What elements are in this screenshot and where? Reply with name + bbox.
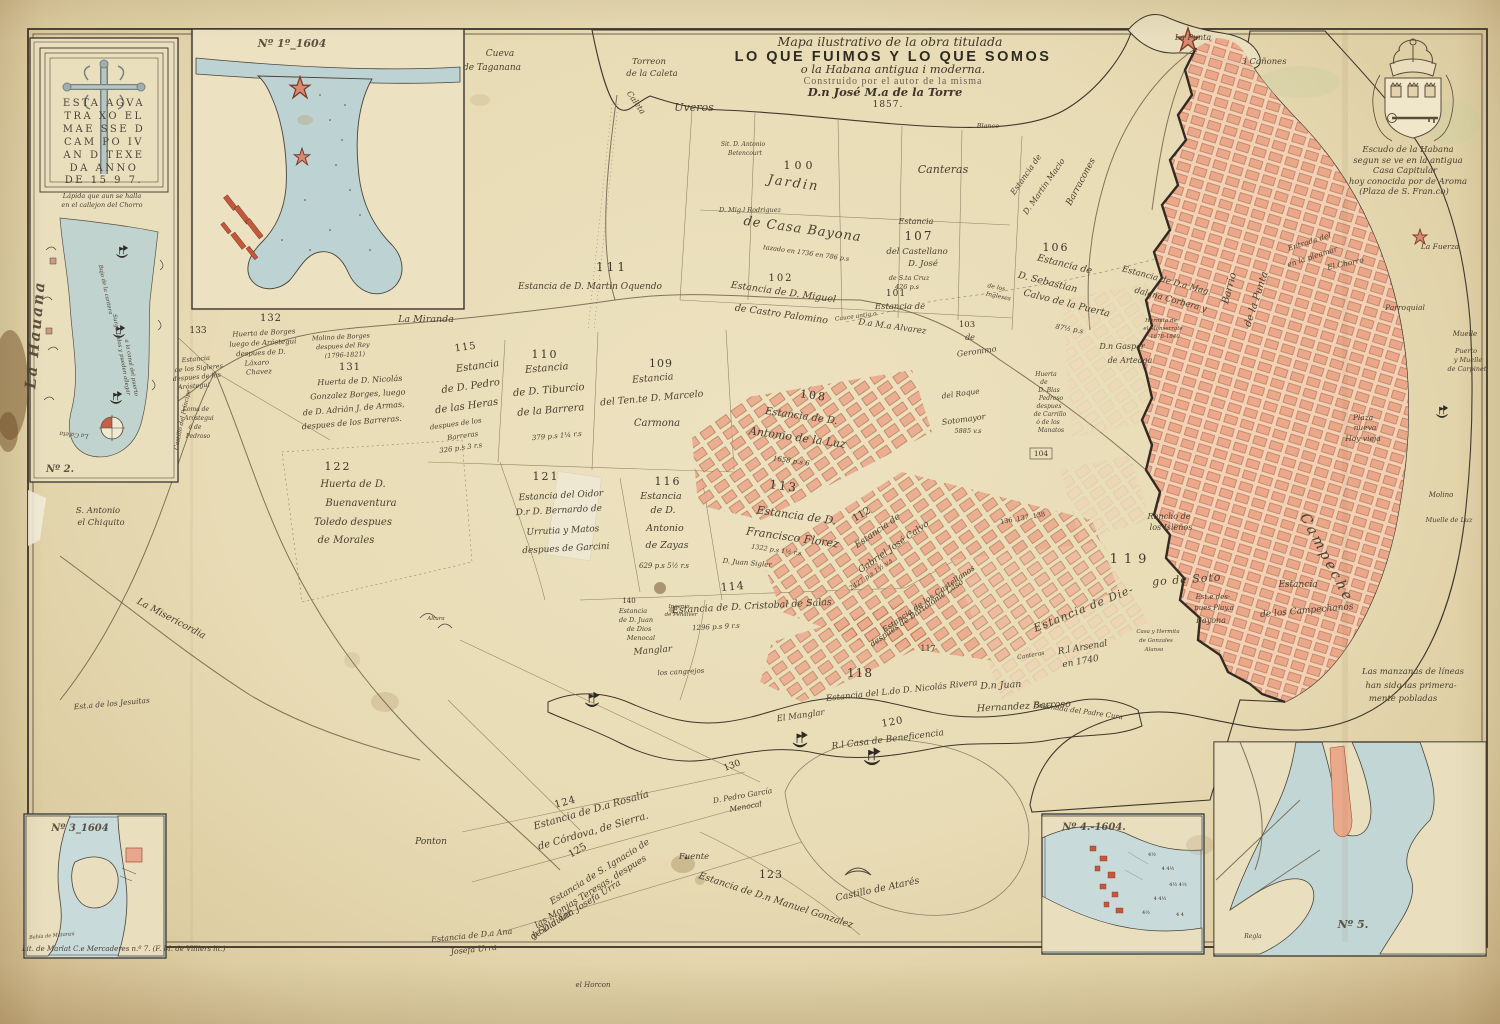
map-label: despues de D. [236,348,286,359]
map-label: Sit. D. Antonio [721,141,766,148]
map-label: Alanso [1144,647,1164,653]
map-label: y Muelle [1453,356,1483,364]
map-label: de la Caleta [626,69,677,79]
map-label: Estancia de [1035,252,1093,277]
map-label: Huerta de D. [319,479,385,490]
map-author: D.n José M.a de la Torre [807,85,963,99]
map-label: Barreras [446,430,479,442]
map-label: de Carpineti [1448,365,1489,373]
map-label: TRA XO EL [64,111,143,122]
map-label: 4½ 4½ [1169,881,1187,888]
map-label: Estancia [454,358,500,375]
map-label: S. Antonio [76,506,120,516]
map-label: de D. Pedro [441,377,501,396]
map-label: ESTA AGVA [63,98,145,109]
map-label: Nº 1º_1604 [257,37,327,51]
map-label: Ensenada del Padre Cura [1032,701,1123,722]
map-label: 107 [905,229,934,243]
map-label: Plaza [1352,413,1373,422]
map-label: 4½ [1148,851,1156,858]
map-label: el Chiquito [77,518,124,528]
map-label: DE 15 9 7. [65,175,143,186]
map-label: 1678-1840 [1150,334,1180,340]
map-label: Gonzalez Borges, luego [310,388,406,402]
map-label: Fuente [678,852,709,862]
map-label: Aróstegui [183,415,214,422]
map-label: de [965,333,975,342]
map-label: mente pobladas [1369,694,1438,704]
map-label: el Monserrate [1143,326,1183,332]
map-label: los Isleños [1150,523,1193,532]
map-label: Aróstegui [177,381,211,392]
map-label: nueva [1354,423,1377,432]
map-title-line3: o la Habana antigua i moderna. [801,62,985,76]
map-label: Lit. de Marlat C.e Mercaderes n.º 7. (F.… [21,945,226,953]
map-label: Jardin [764,172,821,195]
map-label: Nº 5. [1337,918,1369,931]
map-label: 1296 p.s 9 r.s [692,622,740,633]
map-label: Estancia [898,217,934,226]
map-label: 379 p.s 1¼ r.s [532,430,583,442]
map-label: 102 [768,273,793,284]
map-label: Estancia del L.do D. Nicolás Rivera [825,677,978,704]
map-label: 5885 v.s [955,427,983,435]
map-label: de D. Tiburcio [513,382,586,399]
map-label: 119 [1110,552,1153,567]
map-label: 131 [339,362,361,373]
map-label: Uveros [674,101,714,114]
map-label: del Castellano [886,247,947,257]
map-label: Carmona [634,418,680,429]
map-label: de Zayas [646,540,689,551]
map-label: Ingenio [667,604,690,610]
map-label: D. Mig.l Rodriguez [718,206,782,214]
map-label: de S.ta Cruz [889,274,930,282]
map-label: Nº 2. [45,464,74,475]
map-label: El Manglar [775,708,826,725]
map-label: Betencourt [727,150,762,157]
map-label: Estancia de D. Martin Oquendo [517,282,663,292]
map-label: Chavez [246,367,273,376]
inset-no1-1604 [192,29,464,309]
map-label: de D. Juan [619,616,653,624]
map-label: de la Barrera [517,402,585,419]
map-label: MAE SSE D [63,124,145,135]
map-label: 326 p.s 3 r.s [439,441,483,455]
map-label: 120 [881,715,905,730]
map-label: ó de [189,424,202,431]
extramural-blocks [692,282,1158,702]
map-label: Toledo despues [314,517,392,528]
map-label: 101 [886,289,906,299]
map-label: de Arteaga [1108,356,1153,365]
map-label: D. José [907,258,938,269]
map-label: AN D TEXE [62,150,144,161]
map-label: Estancia [631,371,675,386]
title-block: Mapa ilustrativo de la obra titulada LO … [735,34,1052,110]
map-label: 122 [325,460,352,473]
map-label: Huerta [1034,371,1057,378]
map-label: Estancia de [874,302,925,312]
map-label: de D. [650,505,675,516]
map-label: Casa y Hermita [1136,629,1179,635]
map-label: Rancho de [1147,512,1191,521]
map-label: Las manzanas de líneas [1361,666,1465,677]
map-label: La Fuerza [1420,242,1459,251]
map-label: Lápida que aun se halla [62,192,142,200]
map-label: Ingleses [984,290,1011,302]
map-label: Barracones [1064,156,1098,208]
map-label: Estancia [1277,580,1317,590]
map-label: Josefa Urra [448,943,497,957]
map-label: Geronimo [956,344,997,358]
map-label: Parroquial [1384,303,1425,312]
map-label: 4 4½ [1162,865,1175,872]
map-label: de Castro Palomino [734,303,829,327]
map-label: Pedroso [185,433,211,440]
map-label: Estancia de D. [755,503,837,527]
map-label: 115 [454,341,477,355]
map-label: Castillo de Atarés [835,875,921,904]
map-label: del Roque [941,386,981,400]
map-label: D.a M.a Alvarez [857,317,928,337]
map-label: Molino [1428,491,1454,499]
map-label: Estancia [524,361,569,376]
map-label: de las Heras [434,397,498,417]
map-label: en el callejon del Chorro [61,201,142,209]
map-label: 116 [655,475,682,488]
map-label: Cueva [486,49,514,59]
map-label: 109 [649,357,673,370]
map-label: los cangrejos [657,667,705,677]
map-label: de Gonzales [1139,638,1173,644]
map-label: de Morales [318,535,375,546]
map-label: Regla [1243,933,1262,940]
map-label: Escudo de la Habana [1361,145,1453,155]
map-label: Altura [426,616,444,622]
map-label: 4 4½ [1154,895,1167,902]
map-label: D.n Juan [979,679,1022,692]
map-label: 106 [1043,241,1070,254]
map-label: hoy conocida por de Aroma [1349,177,1467,187]
map-label: La Miranda [397,314,454,325]
map-label: D. Blas [1037,387,1059,394]
map-label: D.n Gaspar [1098,342,1146,351]
map-label: segun se ve en la antigua [1353,156,1462,166]
map-label: (Plaza de S. Fran.co) [1359,186,1449,197]
map-label: despues [1037,403,1062,410]
map-label: Puerto [1454,347,1477,355]
map-label: Manglar [632,644,673,657]
map-label: de Dios [627,625,652,633]
map-label: Est.a de los Jesuitas [72,696,150,712]
map-label: de Casa Bayona [743,214,863,245]
map-label: 123 [759,868,783,881]
map-label: Antonio [645,523,684,534]
map-label: DA ANNO [70,163,139,174]
map-label: 629 p.s 5½ r.s [639,562,689,570]
havana-map: Mapa ilustrativo de la obra titulada LO … [0,0,1500,1024]
map-label: Ponton [414,837,447,847]
map-label: Estancia [639,491,682,502]
map-label: 111 [596,260,628,274]
map-label: Caleta [625,89,648,116]
old-city [1138,38,1408,702]
map-label: de Carrillo [1034,411,1067,418]
map-label: han sido las primera- [1365,681,1456,691]
map-label: 132 [260,313,282,324]
map-label: pues Play.a [1194,604,1234,612]
map-label: despues de los [429,416,482,431]
map-title-line1: Mapa ilustrativo de la obra titulada [777,34,1003,49]
map-label: de [1040,379,1048,386]
map-label: 117 [920,644,935,653]
map-label: despues de los Barreras. [301,414,402,432]
map-label: Muelle [1452,330,1477,338]
map-label: Buenaventura [324,498,396,509]
map-label: ó de los [1036,419,1059,426]
map-label: de Taganana [463,63,521,73]
map-label: Nº 4.-1604. [1061,822,1126,833]
map-label: Estancia [618,607,647,615]
map-label: Hoy vieja [1344,434,1381,443]
map-label: tazado en 1736 en 786 p.s [763,243,851,263]
atares-hill [845,868,871,875]
map-label: Torreon [632,57,666,67]
map-label: 104 [1034,449,1049,458]
map-label: Nº 3_1604 [50,823,108,834]
map-label: Muelle de Luz [1425,516,1473,524]
map-label: 103 [959,320,975,330]
map-label: 121 [533,470,560,483]
map-label: Casa Capitular [1373,166,1438,176]
map-label: Hermita de [1144,318,1177,324]
map-label: 140 [622,597,635,605]
map-label: 3 Cañones [1241,57,1287,67]
map-label: 4½ [1142,909,1150,916]
map-label: Canteras [918,163,969,176]
map-label: 118 [847,666,873,680]
map-label: Láxaro [243,358,269,367]
map-label: Pedroso [1038,395,1064,402]
map-label: 125 [567,841,589,860]
map-label: 114 [720,579,745,594]
map-label: La Punta [1174,33,1212,42]
map-label: 110 [532,348,559,361]
map-label: 130 [723,758,743,773]
map-label: el Horcon [576,981,611,989]
map-label: Bayona [1195,616,1226,625]
map-label: 100 [784,159,817,172]
map-label: de Peñalver [665,611,698,618]
map-label: del Ten.te D. Marcelo [600,388,704,408]
map-date: 1857. [873,100,904,110]
map-label: Huerta de D. Nicolás [316,374,402,387]
map-label: Est.e des- [1195,593,1231,601]
map-label: Sotomayor [941,412,987,427]
map-label: Blanco [976,122,1000,130]
map-label: (1796-1821) [325,350,366,360]
map-label: Manatos [1037,427,1064,434]
map-label: CAM PO IV [64,137,144,148]
map-label: Menocal [626,634,655,642]
map-sheet: Mapa ilustrativo de la obra titulada LO … [0,0,1500,1024]
map-label: 133 [189,326,206,336]
map-label: La Misericordia [134,596,208,642]
map-label: 4 4 [1176,912,1184,918]
map-label: R.l Casa de Beneficencia [830,728,944,752]
